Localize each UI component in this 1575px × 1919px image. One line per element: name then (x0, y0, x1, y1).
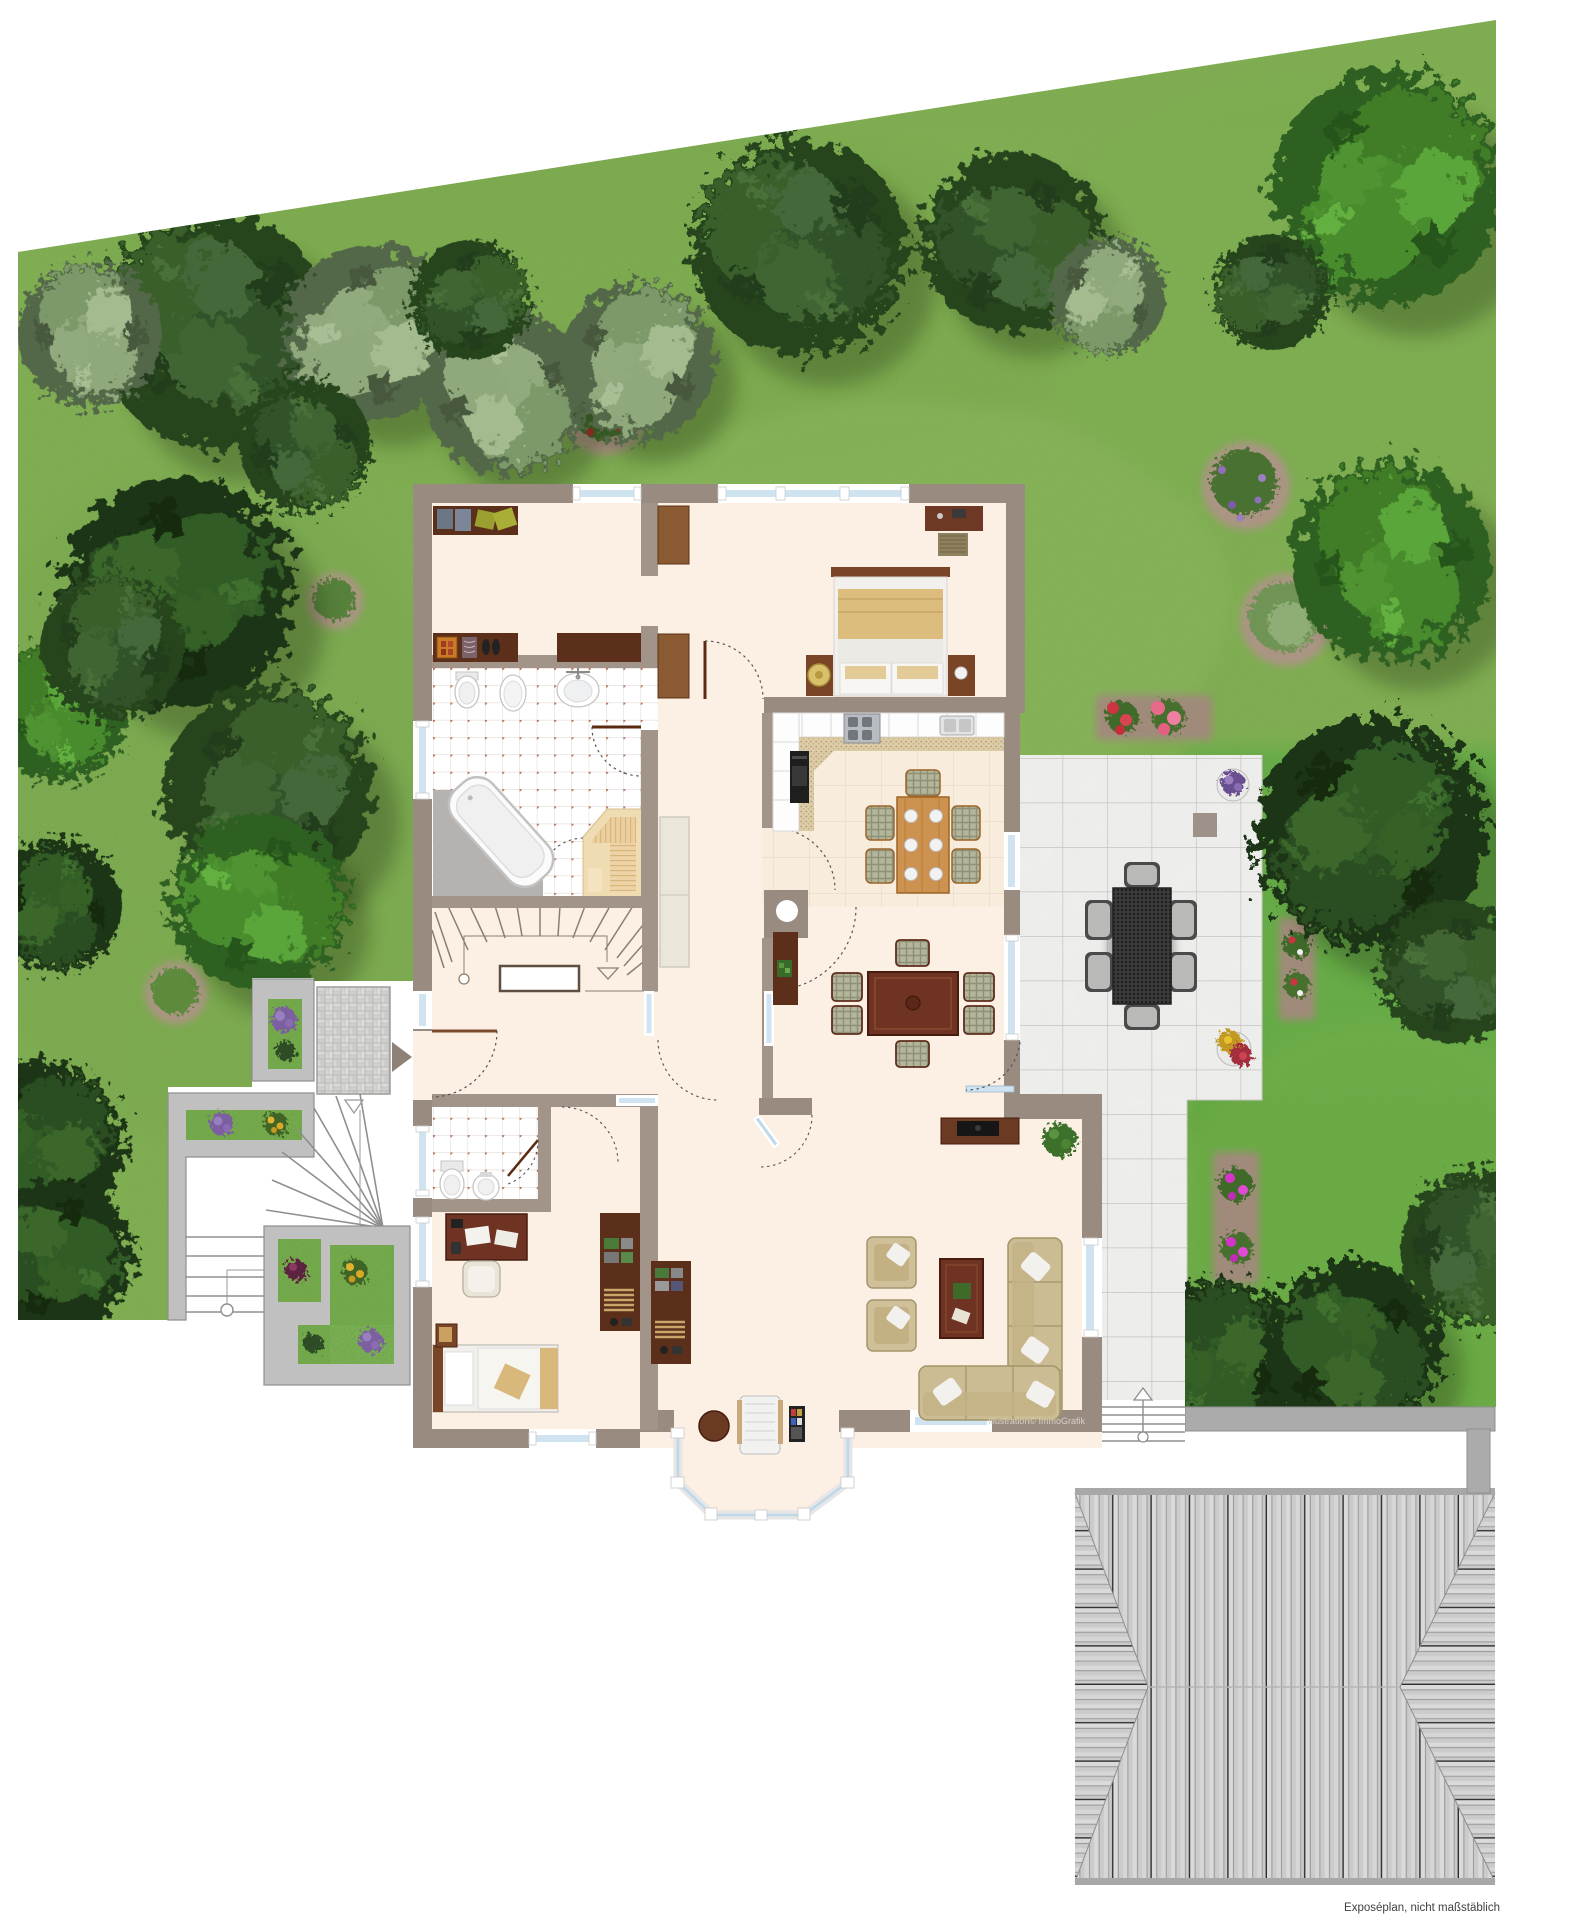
svg-text:Illustration© ImmoGrafik: Illustration© ImmoGrafik (988, 1416, 1085, 1426)
svg-text:Exposéplan, nicht maßstäblich: Exposéplan, nicht maßstäblich (1344, 1902, 1500, 1914)
